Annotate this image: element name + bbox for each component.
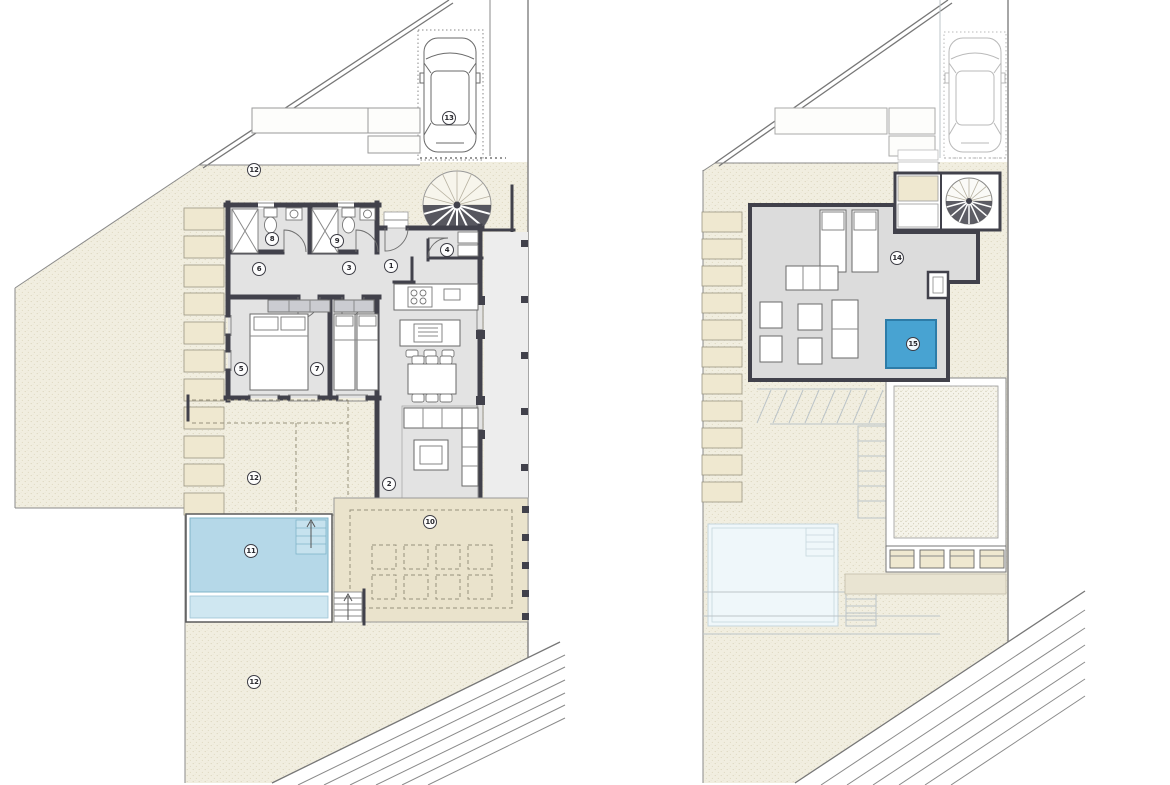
room-label-8: 8: [265, 232, 279, 246]
room-label-9: 9: [330, 234, 344, 248]
armchair: [760, 302, 782, 328]
ground-floor-plan: [15, 0, 565, 785]
dining-table: [408, 364, 456, 394]
room-label-4: 4: [440, 243, 454, 257]
solarium-floor-plan: [702, 0, 1085, 785]
room-label-13: 13: [442, 111, 456, 125]
garden-stair: [334, 590, 364, 624]
swimming-pool: [186, 514, 332, 622]
skylight-box: [928, 272, 948, 298]
room-label-12: 12: [247, 163, 261, 177]
cooktop: [408, 287, 432, 307]
chair: [426, 394, 438, 402]
room-label-12: 12: [247, 471, 261, 485]
pool-ghost: [708, 524, 838, 626]
room-label-10: 10: [423, 515, 437, 529]
side-passage: [484, 232, 528, 506]
room-label-1: 1: [384, 259, 398, 273]
chair: [412, 356, 424, 364]
garden-steps: [184, 208, 224, 515]
car-icon: [420, 38, 480, 152]
kitchen-sink: [444, 289, 460, 300]
room-label-15: 15: [906, 337, 920, 351]
floor-plan-canvas: 1 2 3 4 5 6 7 8 9 10 11 12 12 12 13 14 1…: [0, 0, 1170, 785]
side-table: [798, 304, 822, 330]
room-label-3: 3: [342, 261, 356, 275]
room-label-14: 14: [890, 251, 904, 265]
room-label-11: 11: [244, 544, 258, 558]
entry-porch: [384, 212, 408, 228]
roof-steps: [886, 546, 1006, 572]
chair: [426, 356, 438, 364]
dining-set: [408, 356, 456, 402]
room-label-2: 2: [382, 477, 396, 491]
chair: [412, 394, 424, 402]
room-label-6: 6: [252, 262, 266, 276]
roof-garden: [886, 378, 1006, 546]
outdoor-sofa: [786, 266, 838, 290]
planter-beds: [775, 108, 935, 156]
room-label-7: 7: [310, 362, 324, 376]
spiral-staircase-icon: [946, 178, 992, 224]
floor-plan-drawing: [0, 0, 1170, 785]
side-table: [798, 338, 822, 364]
chair: [440, 394, 452, 402]
armchair: [760, 336, 782, 362]
garden-steps: [702, 212, 742, 502]
planter-beds: [252, 108, 420, 153]
room-label-12: 12: [247, 675, 261, 689]
car-icon: [945, 38, 1005, 152]
terrace-ghost: [845, 574, 1006, 594]
room-label-5: 5: [234, 362, 248, 376]
parking-area: [418, 0, 506, 160]
parking-area: [940, 0, 1006, 158]
chair: [440, 356, 452, 364]
